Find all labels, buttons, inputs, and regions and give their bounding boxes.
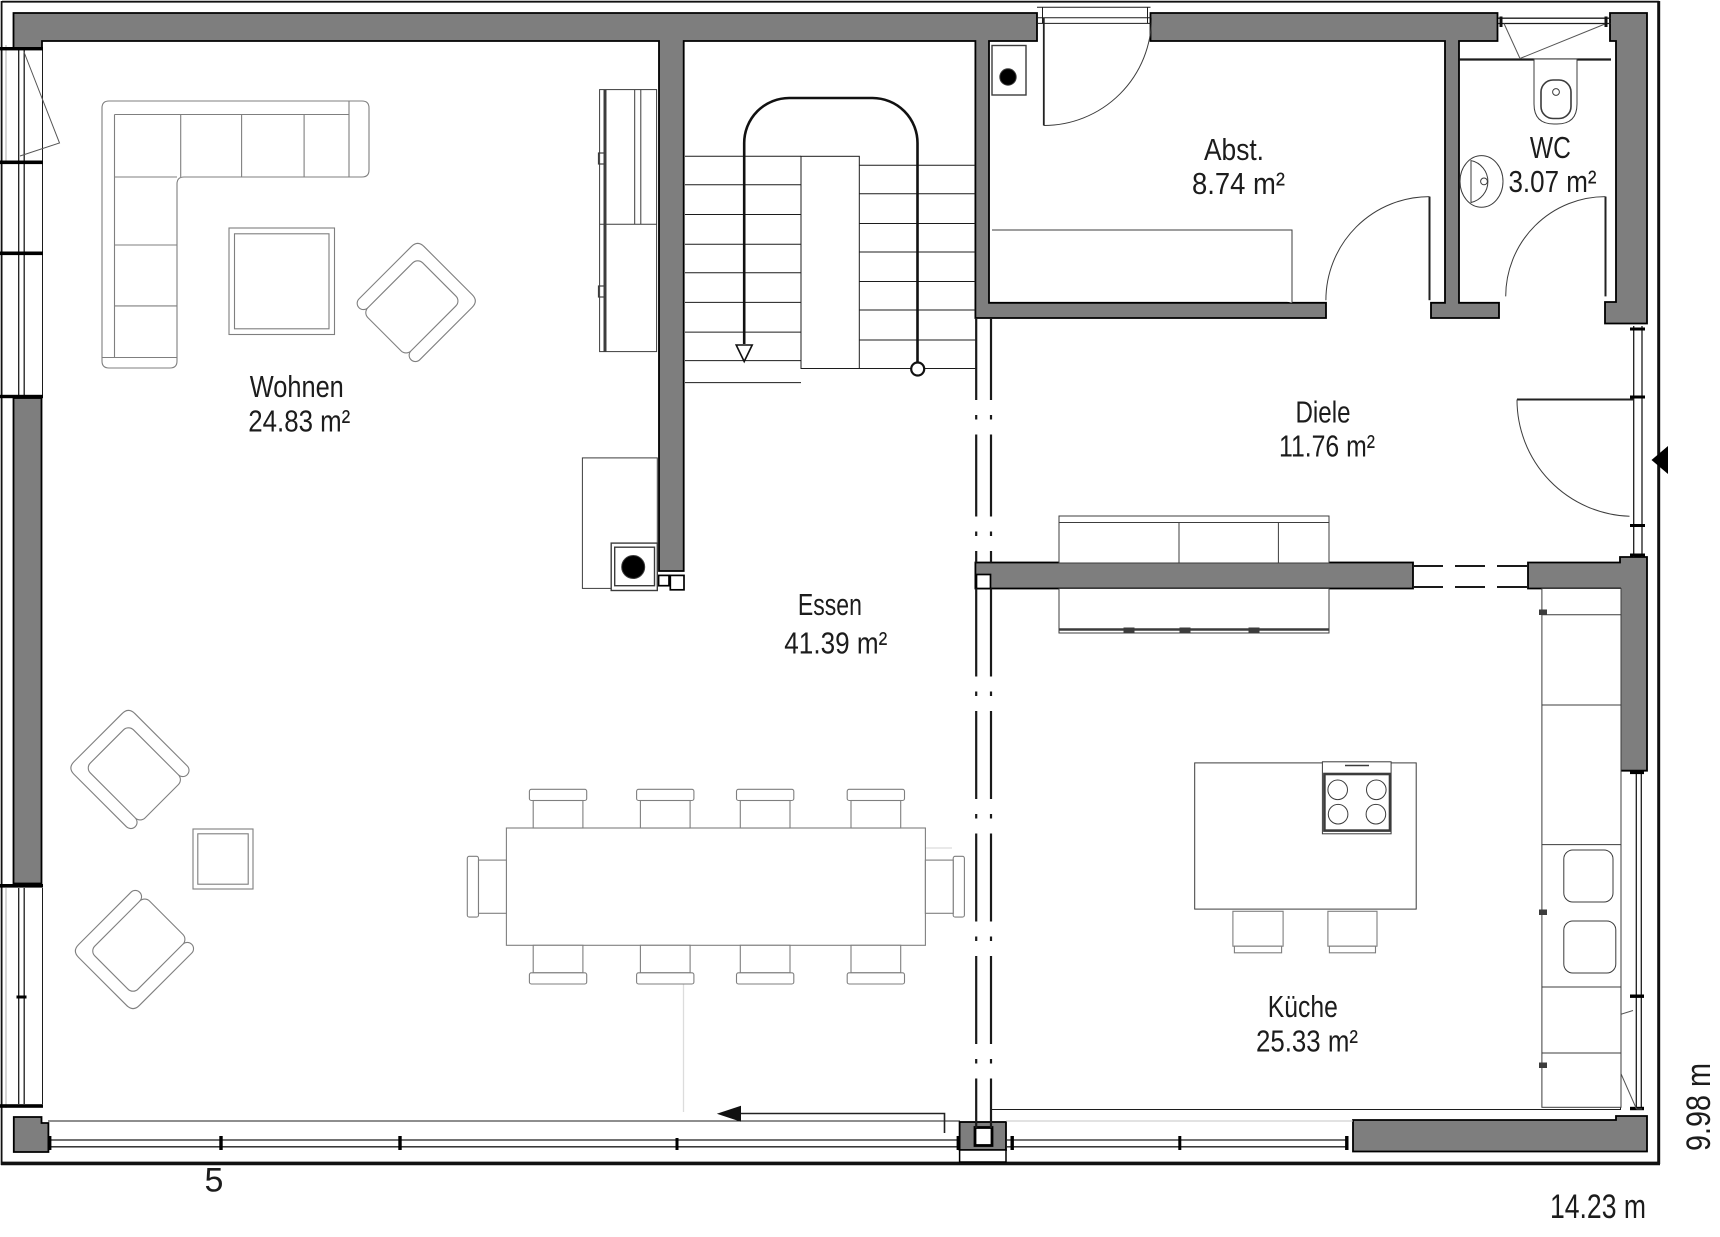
svg-text:Wohnen: Wohnen	[250, 370, 344, 404]
svg-text:Essen: Essen	[798, 588, 862, 622]
svg-text:41.39 m²: 41.39 m²	[784, 627, 887, 661]
svg-text:8.74 m²: 8.74 m²	[1192, 167, 1285, 201]
svg-text:25.33 m²: 25.33 m²	[1256, 1025, 1358, 1059]
svg-text:24.83 m²: 24.83 m²	[248, 405, 350, 439]
svg-text:WC: WC	[1530, 131, 1571, 165]
svg-text:9.98 m: 9.98 m	[1680, 1063, 1718, 1151]
svg-text:11.76 m²: 11.76 m²	[1279, 430, 1375, 464]
svg-text:5: 5	[205, 1162, 224, 1200]
svg-text:Diele: Diele	[1296, 396, 1351, 430]
svg-text:Abst.: Abst.	[1204, 133, 1264, 167]
svg-text:3.07 m²: 3.07 m²	[1509, 165, 1597, 199]
svg-text:14.23 m: 14.23 m	[1550, 1188, 1646, 1226]
svg-text:Küche: Küche	[1268, 990, 1338, 1024]
